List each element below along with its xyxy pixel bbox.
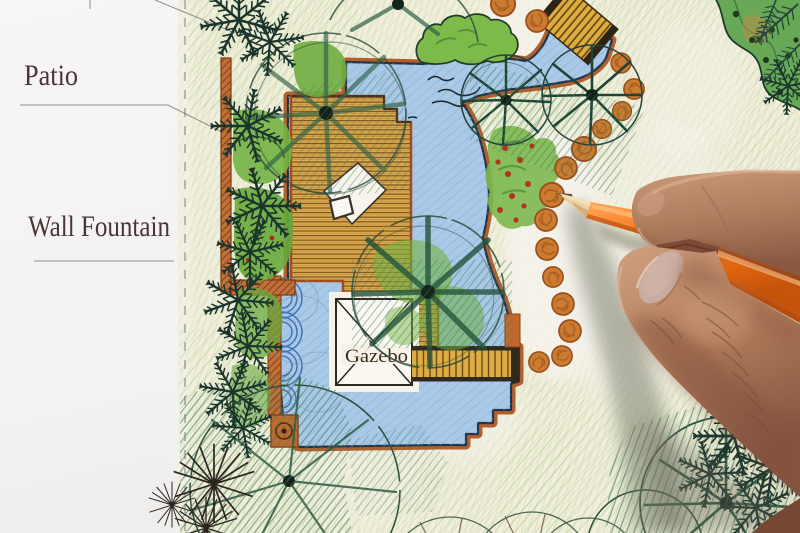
svg-text:Wall Fountain: Wall Fountain [28,210,170,243]
svg-text:Gazebo: Gazebo [345,346,408,367]
svg-text:Patio: Patio [24,59,78,92]
